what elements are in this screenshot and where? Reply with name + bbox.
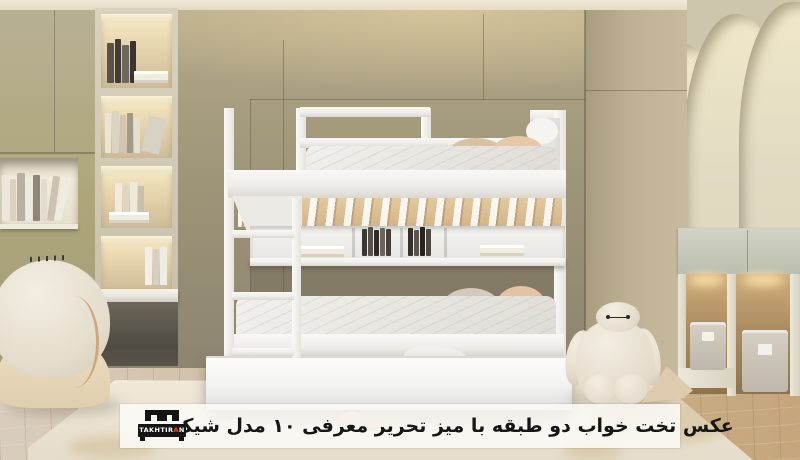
book-spine [153,249,159,285]
bookshelf-cubby [101,166,172,228]
book-spine [145,247,152,285]
book-spine [160,247,167,285]
logo-bed-teeth [145,415,179,421]
book-spine [17,173,25,221]
wall-seam [250,99,585,100]
caption-bar: TAKHTIRAN عکس تخت خواب دو طبقه با میز تح… [120,404,680,448]
cabinet-seam [0,152,95,154]
box-label [758,344,772,355]
caption-text: عکس تخت خواب دو طبقه با میز تحریر معرفی … [120,415,734,437]
kids-bedroom-photo: TAKHTIRAN عکس تخت خواب دو طبقه با میز تح… [0,0,800,460]
book-spine [41,179,47,221]
wall-seam [585,90,687,91]
logo-foot [179,437,184,441]
book-spine [10,179,16,221]
book-stack [134,71,168,83]
left-book-niche [0,158,78,226]
baymax-plush [560,296,700,408]
book-stack [109,212,149,223]
storage-frame [790,274,800,396]
book-spine [2,175,9,221]
book-spine [112,111,119,153]
book-spine [120,115,126,153]
baymax-leg [584,374,618,404]
logo-nameplate: TAKHTIRAN [138,424,186,437]
fabric-storage-box [742,330,788,392]
takhtiran-logo: TAKHTIRAN [134,408,190,445]
book-spine [122,45,129,83]
storage-led-glow [742,274,784,286]
plush-armchair [0,256,114,408]
book-spine [134,117,140,153]
cabinet-seam [54,10,55,152]
book-spine [26,177,32,221]
book-spine [115,39,121,83]
book-spine [105,113,111,153]
bookshelf-cubby [101,14,172,88]
wall-seam [283,40,284,390]
chair-strap [50,296,99,388]
baymax-eye-line [609,317,627,318]
leaning-magazine [141,115,167,154]
bookshelf-cubby [101,96,172,158]
logo-text: TAKHTIRAN [139,427,184,434]
wall-seam [483,14,484,100]
storage-upper-doors [678,228,800,274]
logo-foot [140,437,145,441]
book-spine [107,43,114,83]
door-seam [747,230,748,272]
wall-seam [250,99,251,389]
box-label [702,332,714,341]
book-spine [127,113,133,153]
baymax-leg [614,374,648,404]
niche-shelf [0,224,78,229]
storage-led-glow [688,274,724,286]
book-spine [33,175,40,221]
